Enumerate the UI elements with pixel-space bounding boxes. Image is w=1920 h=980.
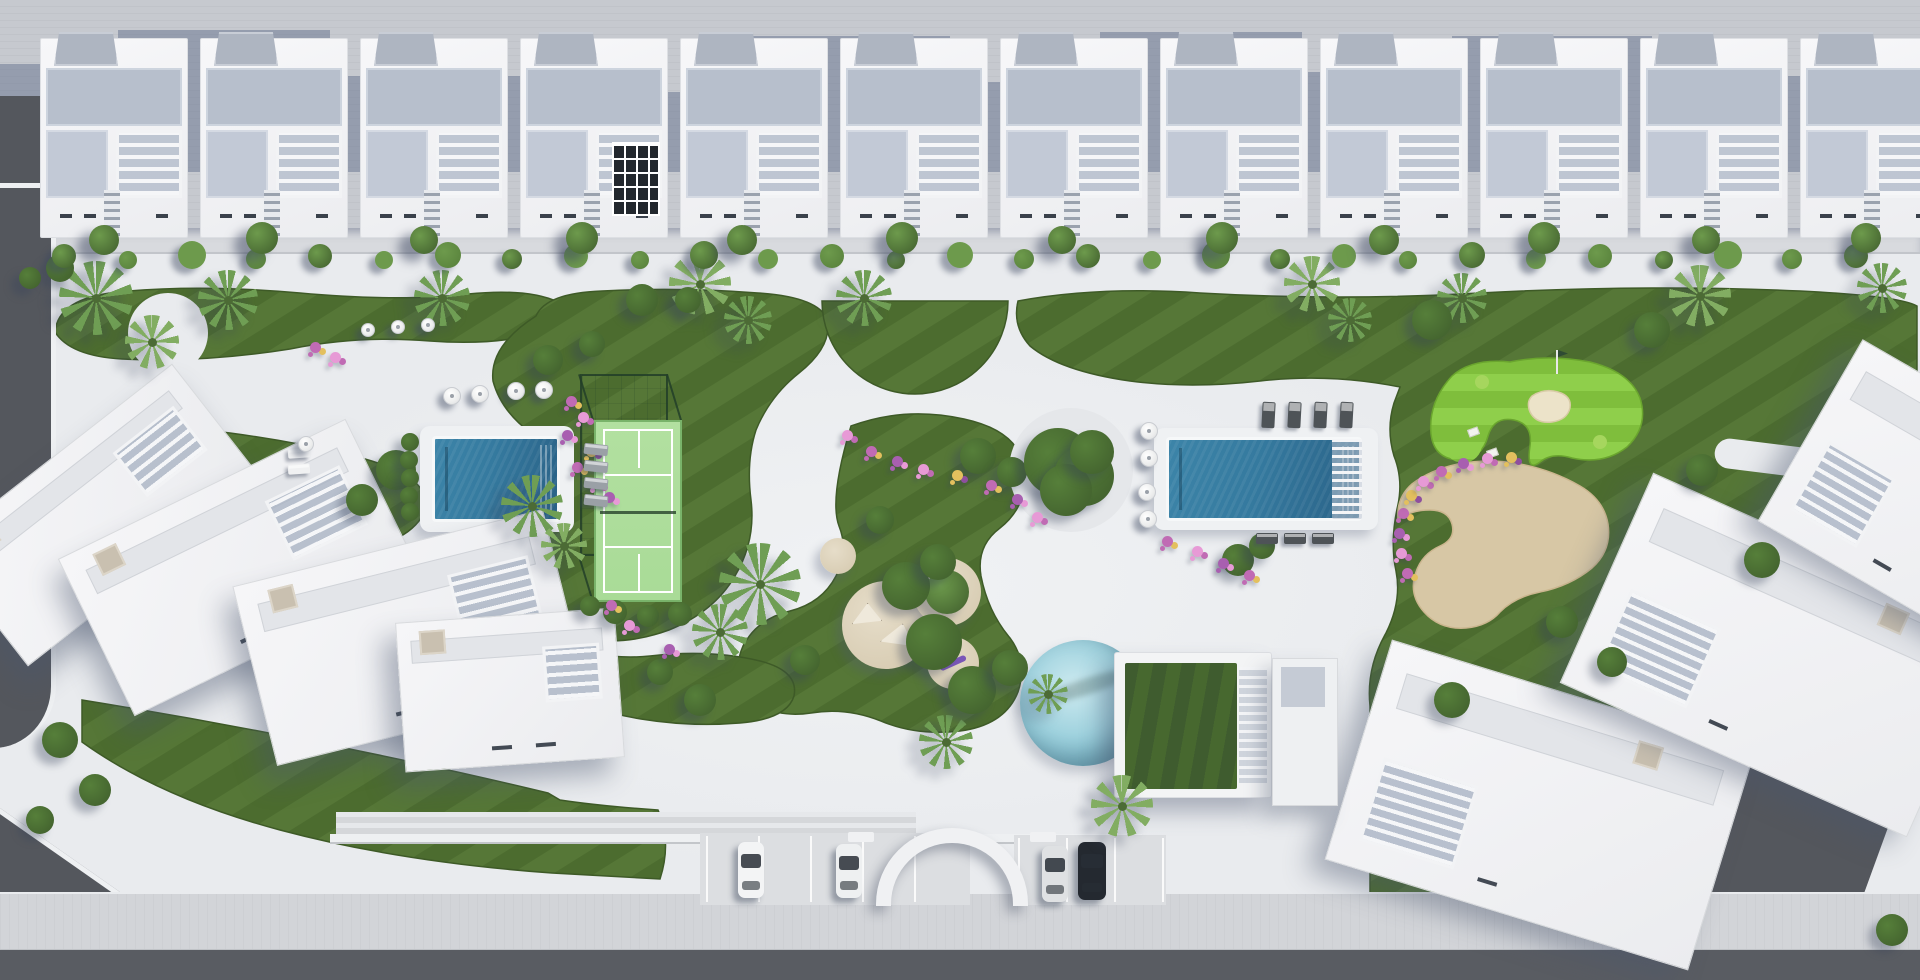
flower-bed bbox=[1482, 453, 1493, 464]
pool-lane-line bbox=[445, 447, 448, 511]
parasol-pole-tip bbox=[1147, 456, 1151, 460]
sun-lounger bbox=[583, 494, 608, 507]
townhouse-row bbox=[0, 0, 1920, 250]
car-windshield bbox=[741, 854, 761, 868]
court-marking bbox=[600, 511, 676, 514]
skylight bbox=[796, 214, 808, 218]
bush bbox=[1597, 647, 1627, 677]
parasol bbox=[443, 387, 461, 405]
street-tree bbox=[1369, 225, 1399, 255]
skylight bbox=[1364, 214, 1376, 218]
pergola-grid bbox=[1556, 130, 1622, 198]
bush bbox=[1686, 454, 1718, 486]
townhouse-unit bbox=[1640, 38, 1788, 238]
palm-trunk-top bbox=[560, 542, 569, 551]
palm-trunk-top bbox=[1878, 284, 1887, 293]
skylight bbox=[404, 214, 416, 218]
parasol bbox=[1138, 483, 1156, 501]
car bbox=[836, 844, 862, 898]
bush bbox=[19, 267, 41, 289]
solar-panel-array bbox=[612, 142, 660, 216]
flower-bed bbox=[1192, 546, 1203, 557]
flower-bed bbox=[952, 470, 963, 481]
palm-trunk-top bbox=[1458, 294, 1467, 303]
entrance-gate-post bbox=[848, 832, 874, 842]
street-tree bbox=[1692, 226, 1720, 254]
sun-lounger bbox=[583, 477, 608, 490]
sun-lounger bbox=[1313, 402, 1327, 429]
street-tree bbox=[1206, 222, 1238, 254]
flower-bed bbox=[578, 412, 589, 423]
parasol-pole-tip bbox=[426, 323, 430, 327]
skylight bbox=[1524, 214, 1536, 218]
lounger-cushion bbox=[1263, 403, 1274, 411]
palm-tree bbox=[724, 296, 772, 344]
hedge-bush bbox=[1076, 244, 1100, 268]
skylight bbox=[1116, 214, 1128, 218]
rooftop-pergola bbox=[1494, 32, 1558, 66]
bush bbox=[675, 287, 701, 313]
roof-terrace bbox=[686, 130, 748, 198]
flower-bed bbox=[1396, 548, 1407, 559]
car-rear-window bbox=[1046, 885, 1064, 894]
lounger-cushion bbox=[585, 495, 607, 501]
skylight bbox=[1436, 214, 1448, 218]
garden-steps bbox=[336, 812, 916, 834]
car-rear-window bbox=[840, 881, 858, 890]
street-tree bbox=[246, 222, 278, 254]
bush bbox=[580, 596, 600, 616]
clubhouse-building bbox=[1114, 652, 1272, 798]
skylight bbox=[1596, 214, 1608, 218]
hedge-bush bbox=[1399, 251, 1417, 269]
hedge-bush bbox=[1014, 249, 1034, 269]
hedge-bush bbox=[435, 242, 461, 268]
hedge-bush bbox=[690, 241, 718, 269]
palm-tree bbox=[1669, 265, 1731, 327]
rooftop-pergola bbox=[854, 32, 918, 66]
roof-terrace bbox=[1006, 130, 1068, 198]
skylight bbox=[380, 214, 392, 218]
apartment-block-southwest bbox=[395, 608, 625, 773]
bush bbox=[647, 659, 673, 685]
hedge-bush bbox=[631, 251, 649, 269]
bush bbox=[26, 806, 54, 834]
bush bbox=[1070, 430, 1114, 474]
flower-bed bbox=[572, 462, 583, 473]
roof-terrace bbox=[206, 68, 342, 126]
rooftop-pergola bbox=[1654, 32, 1718, 66]
parasol bbox=[1140, 422, 1158, 440]
bush bbox=[960, 438, 996, 474]
palm-trunk-top bbox=[438, 294, 447, 303]
roof-terrace bbox=[46, 130, 108, 198]
skylight bbox=[220, 214, 232, 218]
skylight bbox=[476, 214, 488, 218]
skylight bbox=[540, 214, 552, 218]
sun-lounger bbox=[1287, 402, 1301, 429]
roof-terrace bbox=[1326, 68, 1462, 126]
sun-lounger bbox=[583, 460, 608, 473]
south-road bbox=[0, 950, 1920, 980]
skylight bbox=[1756, 214, 1768, 218]
pergola-grid bbox=[1790, 441, 1897, 548]
palm-trunk-top bbox=[1696, 292, 1705, 301]
bush bbox=[1412, 300, 1452, 340]
flower-bed bbox=[562, 430, 573, 441]
car bbox=[1078, 842, 1106, 900]
flower-bed bbox=[866, 446, 877, 457]
bush bbox=[1546, 606, 1578, 638]
flower-bed bbox=[892, 456, 903, 467]
street-tree bbox=[566, 222, 598, 254]
skylight bbox=[1276, 214, 1288, 218]
lounger-cushion bbox=[289, 464, 309, 468]
rooftop-pergola bbox=[534, 32, 598, 66]
parasol bbox=[1140, 449, 1158, 467]
palm-trunk-top bbox=[1308, 280, 1317, 289]
flower-bed bbox=[1398, 508, 1409, 519]
bush bbox=[400, 451, 418, 469]
townhouse-unit bbox=[840, 38, 988, 238]
parasol-pole-tip bbox=[450, 394, 454, 398]
palm-tree bbox=[692, 604, 748, 660]
clubhouse-pergola bbox=[1239, 667, 1267, 783]
palm-tree bbox=[414, 270, 470, 326]
roof-terrace bbox=[1486, 130, 1548, 198]
bush bbox=[579, 331, 605, 357]
palm-trunk-top bbox=[756, 580, 765, 589]
palm-tree bbox=[1028, 674, 1068, 714]
skylight bbox=[884, 214, 896, 218]
skylight bbox=[1044, 214, 1056, 218]
flower-bed bbox=[1406, 490, 1417, 501]
roof-terrace bbox=[366, 130, 428, 198]
pergola-grid bbox=[112, 405, 208, 497]
flower-bed bbox=[1458, 458, 1469, 469]
townhouse-unit bbox=[520, 38, 668, 238]
pergola-grid bbox=[436, 130, 502, 198]
roof-terrace bbox=[686, 68, 822, 126]
bush bbox=[684, 684, 716, 716]
skylight bbox=[1873, 559, 1892, 572]
roof-terrace bbox=[46, 68, 182, 126]
court-marking bbox=[638, 554, 640, 591]
roof-terrace bbox=[1486, 68, 1622, 126]
parasol bbox=[535, 381, 553, 399]
parasol bbox=[507, 382, 525, 400]
roof-terrace bbox=[846, 68, 982, 126]
bush bbox=[1434, 682, 1470, 718]
skylight bbox=[1844, 214, 1856, 218]
pool-lane-line bbox=[1179, 448, 1182, 510]
townhouse-unit bbox=[1480, 38, 1628, 238]
bush bbox=[637, 605, 659, 627]
bush bbox=[401, 503, 419, 521]
palm-tree bbox=[541, 523, 587, 569]
flower-bed bbox=[1012, 494, 1023, 505]
palm-trunk-top bbox=[148, 338, 157, 347]
palm-tree bbox=[919, 715, 973, 769]
townhouse-unit bbox=[200, 38, 348, 238]
roof-terrace bbox=[1166, 130, 1228, 198]
flower-bed bbox=[310, 342, 321, 353]
townhouse-unit bbox=[680, 38, 828, 238]
skylight bbox=[1340, 214, 1352, 218]
palm-trunk-top bbox=[528, 502, 537, 511]
hedge-bush bbox=[1655, 251, 1673, 269]
rooftop-pergola bbox=[694, 32, 758, 66]
flower-bed bbox=[1162, 536, 1173, 547]
hedge-bush bbox=[502, 249, 522, 269]
skylight bbox=[316, 214, 328, 218]
car-rear-window bbox=[742, 881, 760, 890]
skylight bbox=[84, 214, 96, 218]
palm-trunk-top bbox=[860, 294, 869, 303]
sun-lounger bbox=[1312, 533, 1334, 544]
skylight bbox=[1820, 214, 1832, 218]
flower-bed bbox=[664, 644, 675, 655]
roof-terrace bbox=[846, 130, 908, 198]
hedge-bush bbox=[308, 244, 332, 268]
palm-tree bbox=[836, 270, 892, 326]
pergola-grid bbox=[916, 130, 982, 198]
parasol bbox=[1139, 510, 1157, 528]
parasol-pole-tip bbox=[1146, 517, 1150, 521]
street-tree bbox=[727, 225, 757, 255]
palm-trunk-top bbox=[92, 294, 101, 303]
skylight bbox=[536, 742, 556, 747]
lounger-cushion bbox=[1285, 534, 1305, 537]
flower-bed bbox=[1032, 512, 1043, 523]
palm-tree bbox=[1091, 775, 1153, 837]
roof-terrace bbox=[1166, 68, 1302, 126]
lounger-cushion bbox=[585, 478, 607, 484]
townhouse-unit bbox=[1000, 38, 1148, 238]
skylight bbox=[724, 214, 736, 218]
street-tree bbox=[1048, 226, 1076, 254]
pergola-grid bbox=[542, 642, 602, 702]
skylight bbox=[860, 214, 872, 218]
flower-bed bbox=[1436, 466, 1447, 477]
rooftop-pergola bbox=[1014, 32, 1078, 66]
parasol bbox=[298, 436, 314, 452]
skylight bbox=[1708, 719, 1728, 731]
parasol-pole-tip bbox=[304, 442, 308, 446]
hedge-bush bbox=[1143, 251, 1161, 269]
roof-terrace bbox=[1006, 68, 1142, 126]
car-windshield bbox=[1081, 854, 1103, 868]
palm-trunk-top bbox=[696, 280, 705, 289]
skylight bbox=[1500, 214, 1512, 218]
pergola-grid bbox=[756, 130, 822, 198]
palm-tree bbox=[125, 315, 179, 369]
hedge-bush bbox=[758, 249, 778, 269]
pergola-grid bbox=[1396, 130, 1462, 198]
sun-lounger bbox=[1261, 402, 1275, 429]
court-marking bbox=[605, 546, 671, 548]
palm-trunk-top bbox=[1044, 690, 1053, 699]
pergola-grid bbox=[1359, 757, 1478, 869]
clubhouse-annex bbox=[1272, 658, 1338, 806]
skylight bbox=[1660, 214, 1672, 218]
sun-lounger bbox=[288, 463, 311, 475]
parasol-pole-tip bbox=[396, 325, 400, 329]
skylight bbox=[564, 214, 576, 218]
townhouse-unit bbox=[1320, 38, 1468, 238]
skylight bbox=[156, 214, 168, 218]
annex-roof bbox=[1281, 667, 1325, 707]
palm-trunk-top bbox=[224, 296, 233, 305]
skylight bbox=[492, 745, 512, 750]
lounger-cushion bbox=[1315, 403, 1326, 411]
hedge-bush bbox=[1270, 249, 1290, 269]
hedge-bush bbox=[178, 241, 206, 269]
sun-lounger bbox=[1284, 533, 1306, 544]
car-windshield bbox=[839, 856, 859, 870]
rooftop-pergola bbox=[374, 32, 438, 66]
palm-tree bbox=[198, 270, 258, 330]
bush bbox=[79, 774, 111, 806]
hedge-bush bbox=[1588, 244, 1612, 268]
lounger-cushion bbox=[585, 444, 607, 450]
rooftop-pergola bbox=[214, 32, 278, 66]
court-marking bbox=[638, 431, 640, 468]
flower-bed bbox=[1394, 528, 1405, 539]
pergola-grid bbox=[1876, 130, 1920, 198]
flower-bed bbox=[566, 396, 577, 407]
pergola-grid bbox=[276, 130, 342, 198]
skylight bbox=[1180, 214, 1192, 218]
flower-bed bbox=[1244, 570, 1255, 581]
hedge-bush bbox=[1459, 242, 1485, 268]
sun-lounger bbox=[1256, 533, 1278, 544]
bush bbox=[992, 650, 1028, 686]
skylight bbox=[1916, 214, 1920, 218]
street-tree bbox=[410, 226, 438, 254]
bush bbox=[401, 469, 419, 487]
rooftop-pergola bbox=[1814, 32, 1878, 66]
car bbox=[738, 842, 764, 898]
parasol bbox=[471, 385, 489, 403]
skylight bbox=[1477, 877, 1497, 887]
parasol-pole-tip bbox=[1145, 490, 1149, 494]
hedge-bush bbox=[52, 244, 76, 268]
flower-bed bbox=[1218, 558, 1229, 569]
palm-trunk-top bbox=[716, 628, 725, 637]
car bbox=[1042, 846, 1068, 902]
flower-bed bbox=[986, 480, 997, 491]
lounger-cushion bbox=[1289, 403, 1300, 411]
roof-terrace bbox=[526, 68, 662, 126]
parasol-pole-tip bbox=[366, 328, 370, 332]
sun-lounger bbox=[583, 443, 608, 456]
hedge-bush bbox=[375, 251, 393, 269]
skylight bbox=[1020, 214, 1032, 218]
bush bbox=[906, 614, 962, 670]
flower-bed bbox=[1402, 568, 1413, 579]
palm-trunk-top bbox=[942, 738, 951, 747]
bush bbox=[626, 284, 658, 316]
palm-trunk-top bbox=[744, 316, 753, 325]
roof-terrace bbox=[526, 130, 588, 198]
hedge-bush bbox=[820, 244, 844, 268]
hedge-bush bbox=[1332, 244, 1356, 268]
bush bbox=[790, 645, 820, 675]
roof-terrace bbox=[1646, 68, 1782, 126]
bush bbox=[997, 457, 1027, 487]
parasol-pole-tip bbox=[542, 388, 546, 392]
pergola-grid bbox=[1236, 130, 1302, 198]
roof-terrace bbox=[1806, 68, 1920, 126]
roof-terrace bbox=[1326, 130, 1388, 198]
pool-pergola-east bbox=[1332, 439, 1362, 519]
roof-terrace bbox=[1646, 130, 1708, 198]
pergola-grid bbox=[1076, 130, 1142, 198]
parasol bbox=[361, 323, 375, 337]
site-plan-canvas bbox=[0, 0, 1920, 980]
skylight bbox=[60, 214, 72, 218]
pergola-grid bbox=[1716, 130, 1782, 198]
street-tree bbox=[89, 225, 119, 255]
bush bbox=[346, 484, 378, 516]
court-marking bbox=[605, 474, 671, 476]
townhouse-unit bbox=[40, 38, 188, 238]
lounger-cushion bbox=[1341, 403, 1352, 411]
flower-bed bbox=[1418, 476, 1429, 487]
clubhouse-green-roof bbox=[1125, 663, 1237, 789]
rooftop-pergola bbox=[1334, 32, 1398, 66]
bush bbox=[1634, 312, 1670, 348]
lounger-cushion bbox=[1313, 534, 1333, 537]
street-tree bbox=[1528, 222, 1560, 254]
parasol-pole-tip bbox=[478, 392, 482, 396]
lounger-cushion bbox=[1257, 534, 1277, 537]
flower-bed bbox=[918, 464, 929, 475]
car-windshield bbox=[1045, 858, 1065, 872]
townhouse-unit bbox=[1800, 38, 1920, 238]
flower-bed bbox=[606, 600, 617, 611]
lounger-cushion bbox=[585, 461, 607, 467]
bush bbox=[1876, 914, 1908, 946]
street-tree bbox=[1851, 223, 1881, 253]
bush bbox=[668, 602, 692, 626]
bush bbox=[920, 544, 956, 580]
rooftop-box bbox=[418, 629, 446, 655]
skylight bbox=[1204, 214, 1216, 218]
pergola-grid bbox=[116, 130, 182, 198]
roof-terrace bbox=[366, 68, 502, 126]
flower-bed bbox=[842, 430, 853, 441]
rooftop-pergola bbox=[54, 32, 118, 66]
townhouse-unit bbox=[1160, 38, 1308, 238]
street-tree bbox=[886, 222, 918, 254]
bush bbox=[42, 722, 78, 758]
entrance-gate-post bbox=[1030, 832, 1056, 842]
palm-tree bbox=[1857, 263, 1907, 313]
townhouse-unit bbox=[360, 38, 508, 238]
parasol-pole-tip bbox=[514, 389, 518, 393]
parasol-pole-tip bbox=[1147, 429, 1151, 433]
bush bbox=[948, 666, 996, 714]
hedge-bush bbox=[947, 242, 973, 268]
car-rear-window bbox=[1082, 883, 1102, 892]
palm-trunk-top bbox=[1118, 802, 1127, 811]
bush bbox=[866, 506, 894, 534]
bush bbox=[533, 345, 563, 375]
chillout-pad bbox=[820, 538, 856, 574]
roof-terrace bbox=[206, 130, 268, 198]
